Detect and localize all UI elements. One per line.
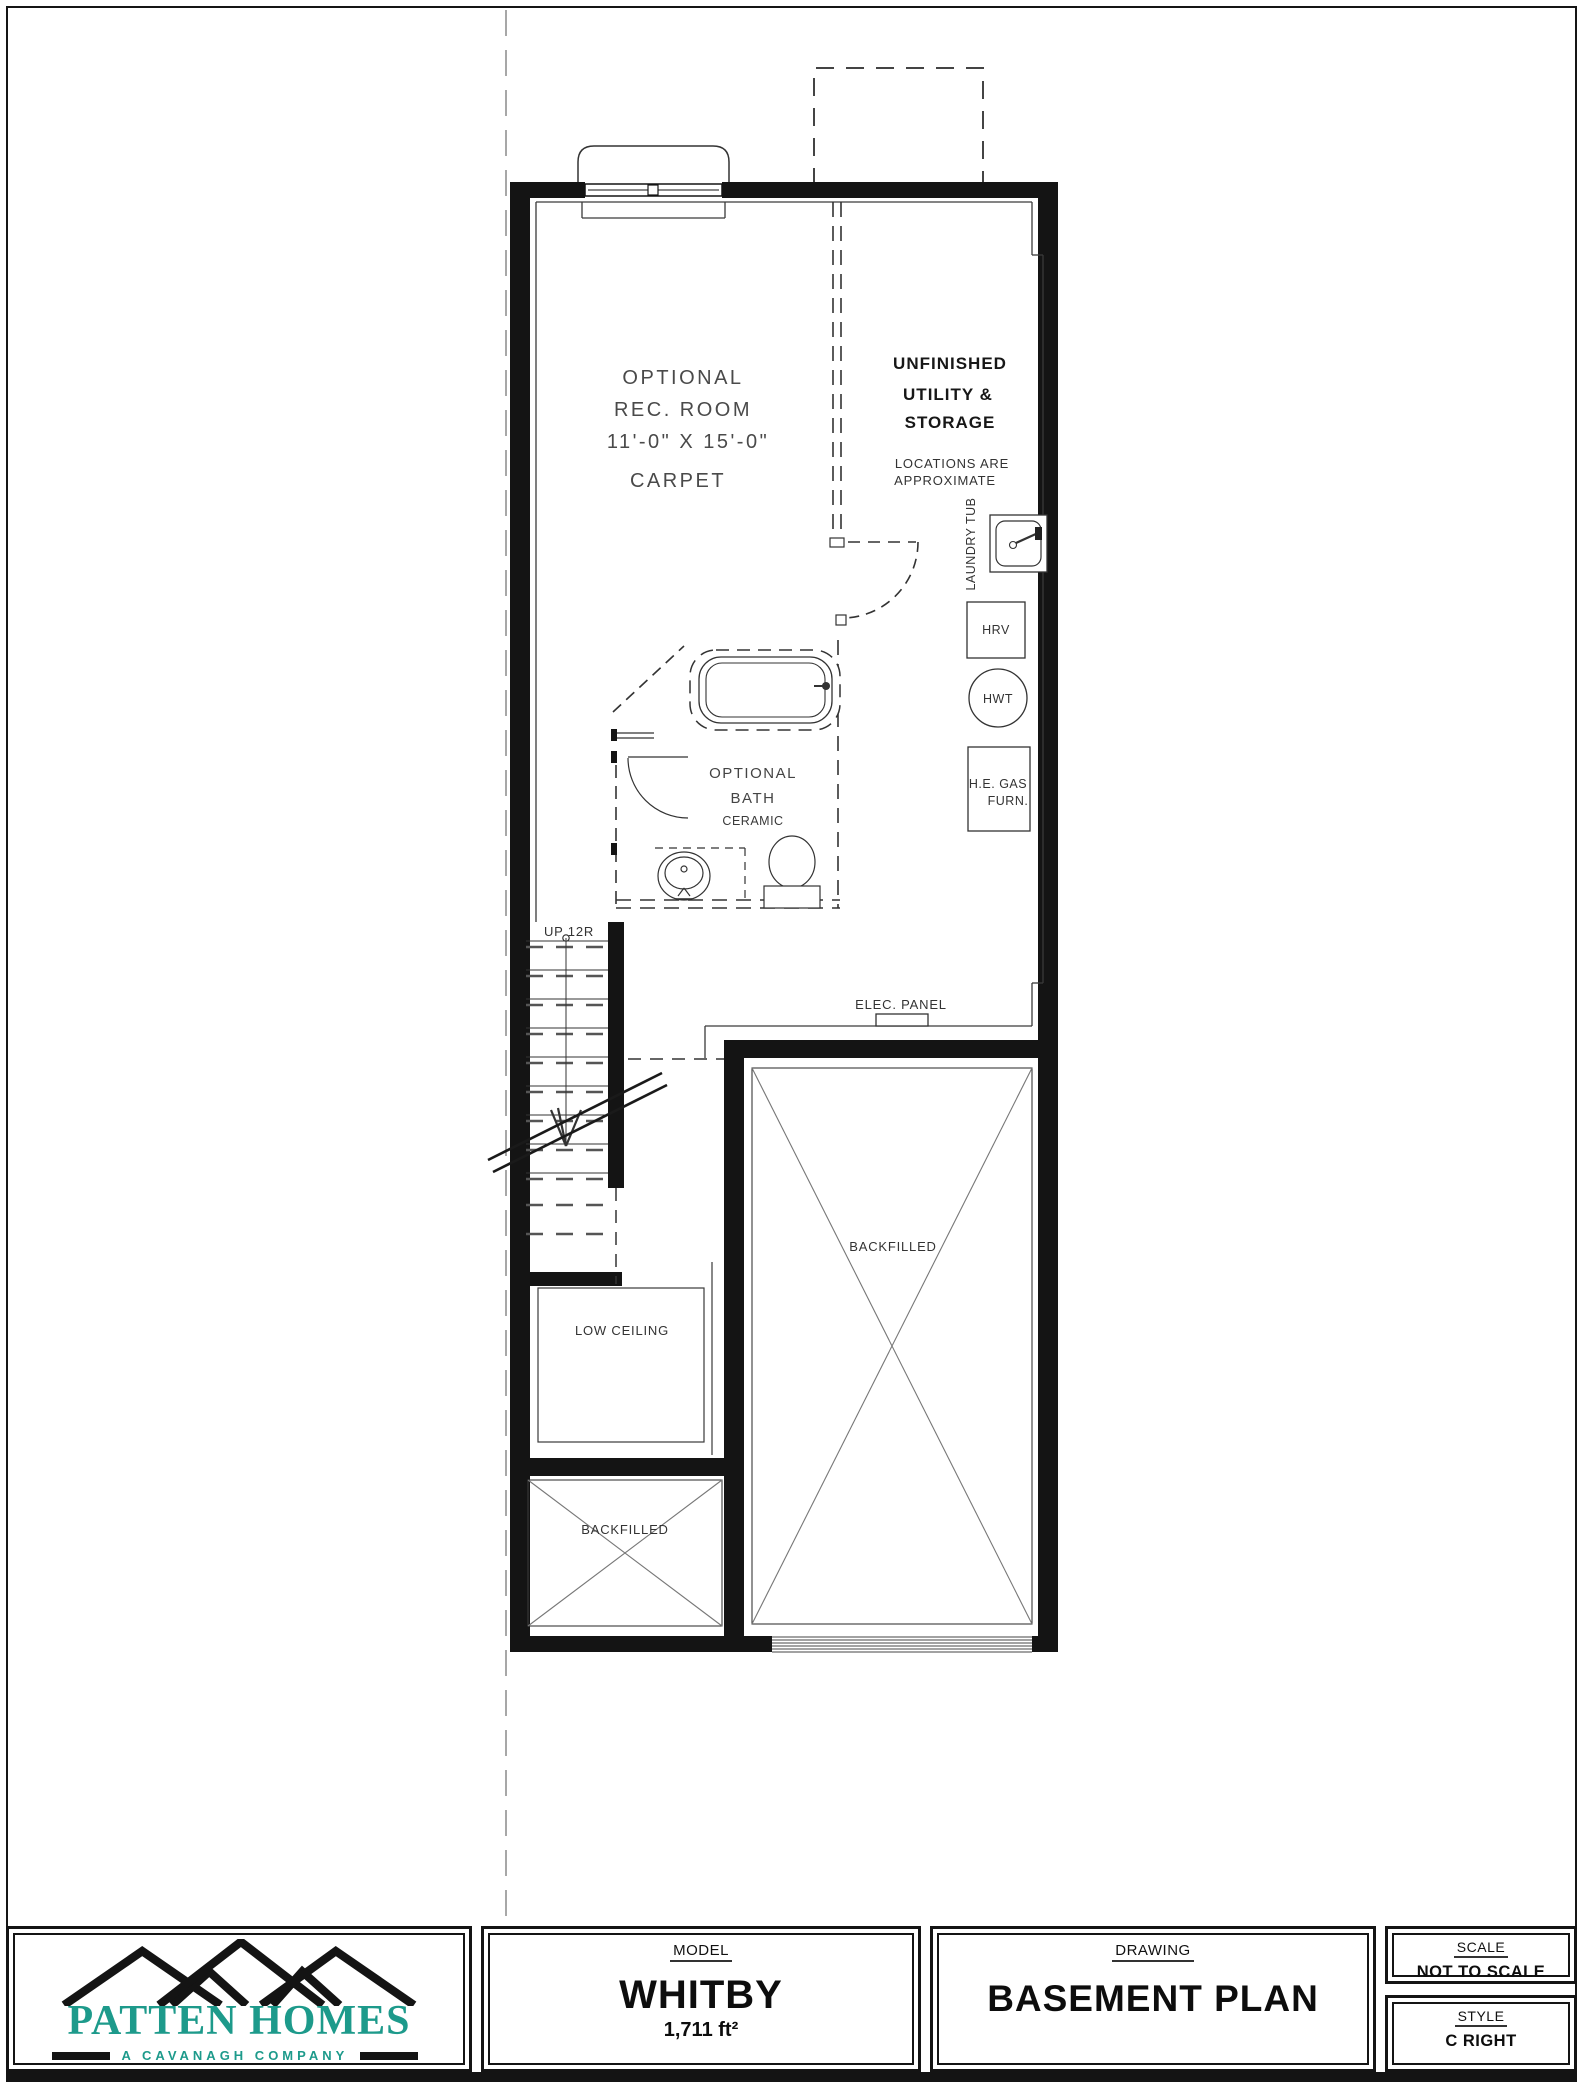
small-backfilled-area	[528, 1480, 722, 1626]
garage-door	[772, 1637, 1032, 1652]
bath-finish-label: CERAMIC	[722, 814, 783, 828]
bath-sink	[658, 852, 710, 900]
stairs-up-label: UP 12R	[544, 924, 594, 939]
furnace-label: FURN.	[988, 794, 1029, 808]
scale-style-column: SCALE NOT TO SCALE STYLE C RIGHT	[1385, 1926, 1577, 2072]
logo-bar-right	[360, 2052, 418, 2060]
bath-label: OPTIONAL	[709, 765, 797, 782]
scale-box: SCALE NOT TO SCALE	[1385, 1926, 1577, 1984]
drawing-box: DRAWING BASEMENT PLAN	[930, 1926, 1376, 2072]
rec-room-finish: CARPET	[630, 470, 726, 492]
elec-panel-label: ELEC. PANEL	[855, 997, 947, 1012]
scale-heading: SCALE	[1454, 1939, 1508, 1958]
brand-name: PATTEN HOMES	[68, 2000, 411, 2042]
rec-room-label: REC. ROOM	[614, 399, 752, 421]
style-value: C RIGHT	[1445, 2032, 1516, 2051]
scale-value: NOT TO SCALE	[1417, 1963, 1546, 1982]
garage-backfilled-area	[752, 1068, 1032, 1624]
model-box: MODEL WHITBY 1,711 ft²	[481, 1926, 921, 2072]
window-well	[578, 146, 729, 184]
style-heading: STYLE	[1455, 2008, 1508, 2027]
bath-label: BATH	[731, 790, 776, 807]
rec-room-dimensions: 11'-0" X 15'-0"	[607, 431, 769, 453]
bottom-border-bar	[6, 2072, 1577, 2082]
drawing-title: BASEMENT PLAN	[987, 1978, 1319, 2020]
title-block: PATTEN HOMES A CAVANAGH COMPANY MODEL WH…	[6, 1926, 1577, 2072]
hrv-label: HRV	[982, 623, 1010, 637]
utility-door-arc	[842, 542, 918, 618]
model-heading: MODEL	[670, 1942, 732, 1962]
low-ceiling-area	[538, 1262, 712, 1455]
locations-note: LOCATIONS ARE	[895, 456, 1009, 471]
bathtub	[690, 650, 840, 730]
utility-room-label: STORAGE	[905, 413, 996, 432]
garage-backfilled-label: BACKFILLED	[849, 1239, 936, 1254]
toilet	[764, 836, 820, 908]
locations-note: APPROXIMATE	[894, 473, 996, 488]
model-area: 1,711 ft²	[664, 2019, 738, 2042]
logo-bar-left	[52, 2052, 110, 2060]
style-box: STYLE C RIGHT	[1385, 1995, 1577, 2072]
hwt-label: HWT	[983, 692, 1013, 706]
utility-room-label: UNFINISHED	[893, 354, 1007, 373]
mountains-logo-icon	[49, 1939, 429, 2006]
floor-plan: OPTIONAL REC. ROOM 11'-0" X 15'-0" CARPE…	[0, 0, 1583, 1923]
bath-door-arc	[628, 758, 688, 818]
rec-room-label: OPTIONAL	[622, 367, 743, 389]
laundry-tub	[990, 515, 1047, 572]
utility-room-label: UTILITY &	[903, 385, 993, 404]
logo-box: PATTEN HOMES A CAVANAGH COMPANY	[6, 1926, 472, 2072]
drawing-heading: DRAWING	[1112, 1942, 1193, 1962]
electrical-panel	[876, 1014, 928, 1026]
brand-tagline: A CAVANAGH COMPANY	[122, 2048, 349, 2063]
laundry-tub-label: LAUNDRY TUB	[964, 497, 978, 590]
furnace-label: H.E. GAS	[969, 777, 1027, 791]
basement-window	[585, 184, 722, 196]
porch-dashed-outline	[814, 68, 983, 186]
bath-diagonal-wall	[613, 646, 684, 712]
blueprint-page: OPTIONAL REC. ROOM 11'-0" X 15'-0" CARPE…	[0, 0, 1583, 2082]
model-name: WHITBY	[619, 1973, 783, 2018]
small-backfilled-label: BACKFILLED	[581, 1522, 668, 1537]
low-ceiling-label: LOW CEILING	[575, 1323, 669, 1338]
